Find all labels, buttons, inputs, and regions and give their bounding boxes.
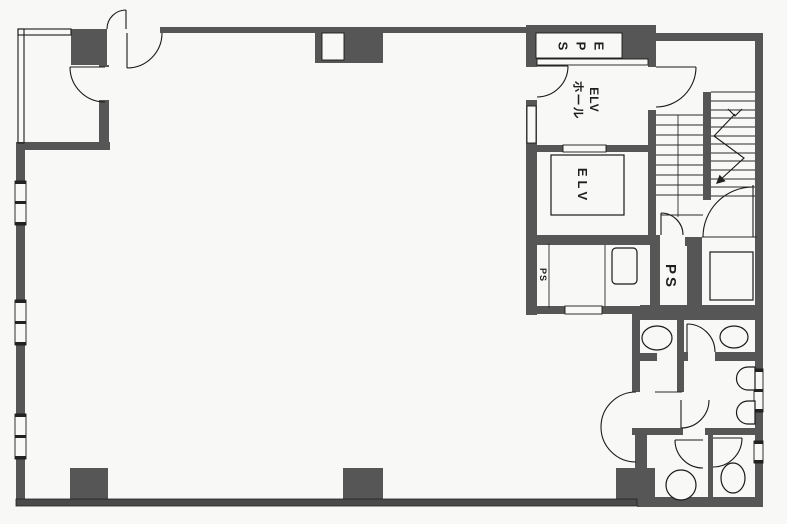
pipe-shaft-large-label: PS (663, 262, 679, 292)
elevator-hall-label-line2: ホール (570, 80, 586, 119)
openings (99, 33, 705, 435)
balcony-wall-left (18, 29, 24, 143)
balcony-door-gap (99, 67, 109, 100)
entry-door-outer-leaf (107, 10, 126, 29)
window-left-3 (15, 414, 26, 459)
landing-small-door-gap (660, 237, 685, 246)
basin-icon (666, 470, 696, 500)
elevator-hall-label-line1: ELV (586, 80, 602, 119)
wall-mens-bottom (705, 428, 763, 435)
hall-stairs-door (656, 67, 696, 107)
hall-west-window (527, 106, 536, 143)
wall-kitchen-ps (650, 235, 660, 313)
wall-bottom-thin (16, 499, 637, 506)
pillar-top-left (71, 29, 107, 65)
sink-room-gap (683, 428, 705, 435)
stair-treads-left (656, 115, 703, 195)
kitchen-unit (612, 248, 637, 284)
wall-sink-toilet (708, 435, 713, 500)
wall-ps-right (687, 245, 702, 305)
kitchen-door-gap (565, 306, 602, 314)
toilet-entry-swing-door (601, 392, 636, 462)
toilet-icon-c (721, 463, 745, 493)
elevator-label: ELV (575, 156, 591, 216)
toilet-icon-b (720, 326, 748, 348)
wall-vestibule-bottom (632, 428, 683, 435)
urinal-icon-1 (737, 367, 756, 390)
balcony-outline (18, 29, 71, 143)
wall-balcony-bottom (16, 142, 110, 150)
floor-plan-canvas: EPS ELV ホール ELV PS PS (0, 0, 787, 524)
pillar-bottom-mid (343, 468, 383, 500)
wall-top-stairs (650, 33, 763, 41)
stair-direction-arrow (714, 109, 744, 184)
wall-stallB-l (683, 352, 688, 361)
wall-elv-bottom (537, 235, 653, 245)
hall-door (537, 66, 568, 97)
sink-room-door (675, 440, 703, 468)
elevator-hall-label: ELV ホール (566, 72, 606, 128)
entry-door-inner-leaf (127, 33, 162, 68)
eps-label: EPS (536, 33, 622, 58)
window-left-2 (15, 300, 26, 345)
toilet-icon-a (642, 326, 672, 350)
pillar-bottom-left (70, 468, 108, 500)
urinal-icon-2 (737, 401, 756, 424)
stallB-door (687, 324, 715, 352)
wall-ps-bottom (640, 305, 763, 313)
wall-bottom-right (637, 497, 763, 507)
eps-strip (537, 59, 648, 65)
stair-divider (703, 92, 711, 200)
window-right-2 (754, 441, 763, 463)
vestibule-mens-door (681, 400, 709, 428)
eps-label-text: EPS (552, 38, 606, 53)
pillar-shaft-inset (322, 33, 344, 60)
hall-west-door-gap (526, 67, 537, 100)
toilet-room-door (713, 438, 742, 467)
pillar-bottom-right (616, 468, 655, 502)
stallA-door-gap (657, 353, 677, 361)
window-left-1 (15, 181, 26, 225)
storage-inner-box (710, 252, 753, 300)
wall-right (755, 33, 763, 507)
balcony-wall-top (18, 29, 71, 35)
wall-landing-seg (685, 237, 702, 246)
wall-partition-ab (677, 318, 684, 392)
wall-stallB-r (715, 352, 757, 361)
wall-stallA (632, 353, 657, 361)
elevator-door-gap (563, 145, 606, 152)
landing-door-small (661, 213, 683, 235)
wall-toilet-top (632, 312, 763, 320)
hall-east-door-gap (648, 67, 656, 110)
pipe-shaft-small-label: PS (537, 264, 549, 286)
